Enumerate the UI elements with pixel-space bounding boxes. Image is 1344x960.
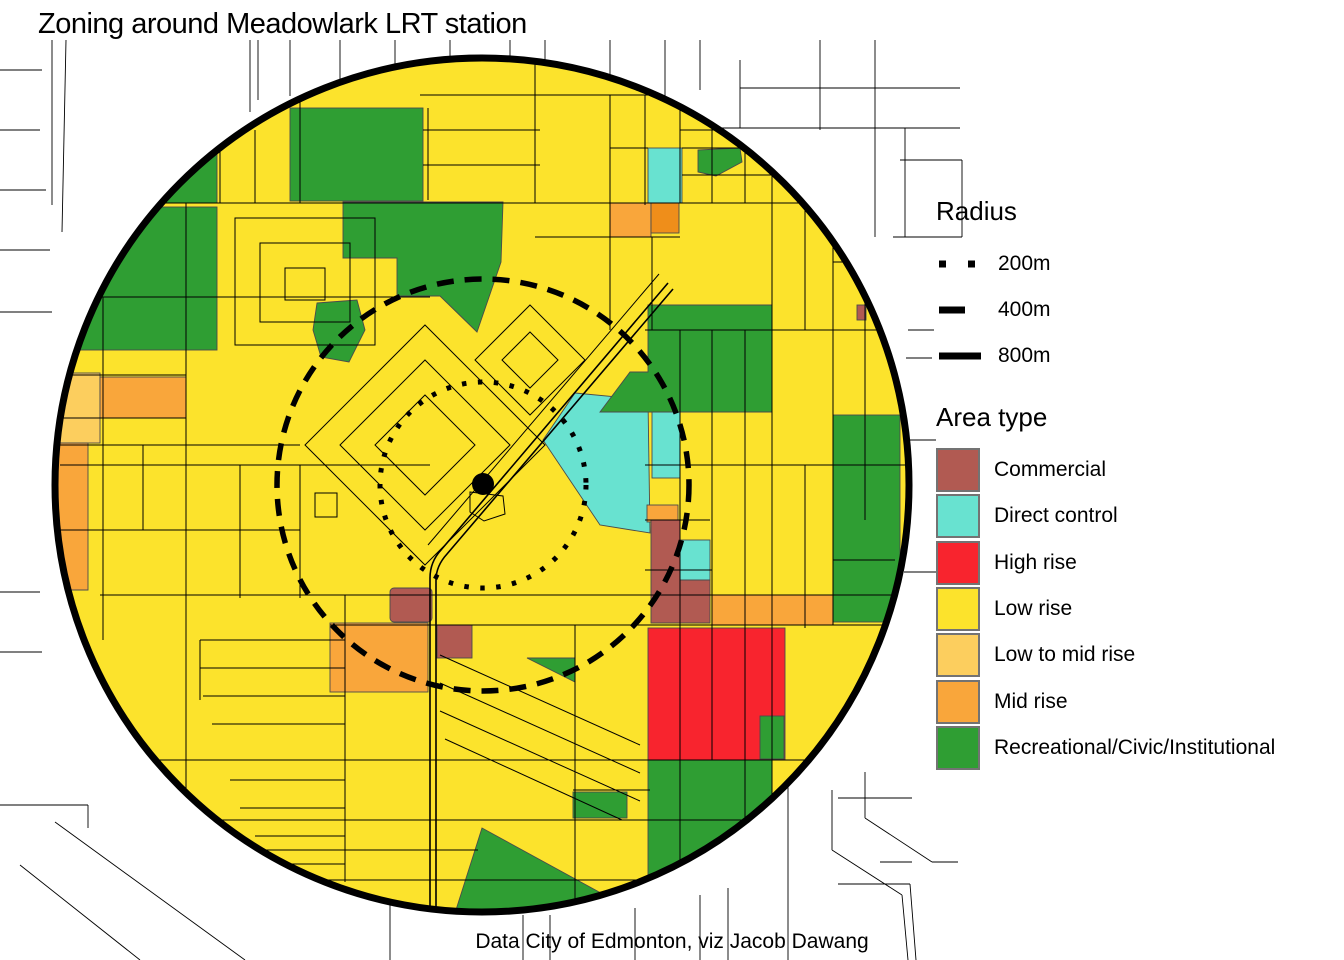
legend-radius-item-800m: 800m <box>936 333 1336 379</box>
legend-item-label: Commercial <box>994 458 1106 482</box>
legend-radius-label: 200m <box>998 252 1051 276</box>
solid-line-sample-icon <box>936 350 992 362</box>
station-marker <box>472 473 494 495</box>
legend-item-label: Low rise <box>994 597 1072 621</box>
low-to-mid-rise-swatch <box>936 633 980 677</box>
legend-radius: Radius 200m 400m 800m <box>936 196 1336 379</box>
legend-area-type: Area type Commercial Direct control High… <box>936 402 1336 771</box>
legend-item-label: Direct control <box>994 504 1118 528</box>
plot-canvas: Zoning around Meadowlark LRT station Rad… <box>0 0 1344 960</box>
dotted-line-sample-icon <box>936 258 992 270</box>
legend-item-low-to-mid-rise: Low to mid rise <box>936 632 1336 678</box>
legend-item-recreational: Recreational/Civic/Institutional <box>936 725 1336 771</box>
legend-radius-label: 400m <box>998 298 1051 322</box>
legend-radius-item-400m: 400m <box>936 287 1336 333</box>
data-source-caption: Data City of Edmonton, viz Jacob Dawang <box>0 930 1344 954</box>
legend-item-direct-control: Direct control <box>936 493 1336 539</box>
legend-item-label: High rise <box>994 551 1077 575</box>
recreational-swatch <box>936 726 980 770</box>
legend-area-type-title: Area type <box>936 402 1336 433</box>
legend-item-label: Recreational/Civic/Institutional <box>994 736 1275 760</box>
legend-item-label: Low to mid rise <box>994 643 1135 667</box>
dashed-line-sample-icon <box>936 304 992 316</box>
legend-radius-label: 800m <box>998 344 1051 368</box>
legend-item-low-rise: Low rise <box>936 586 1336 632</box>
commercial-swatch <box>936 448 980 492</box>
legend-item-high-rise: High rise <box>936 540 1336 586</box>
direct-control-swatch <box>936 494 980 538</box>
legend-item-commercial: Commercial <box>936 447 1336 493</box>
legend-item-mid-rise: Mid rise <box>936 678 1336 724</box>
legend-radius-item-200m: 200m <box>936 241 1336 287</box>
legend-item-label: Mid rise <box>994 690 1068 714</box>
legend-radius-title: Radius <box>936 196 1336 227</box>
low-rise-swatch <box>936 587 980 631</box>
high-rise-swatch <box>936 541 980 585</box>
page-title: Zoning around Meadowlark LRT station <box>38 8 527 41</box>
mid-rise-swatch <box>936 680 980 724</box>
